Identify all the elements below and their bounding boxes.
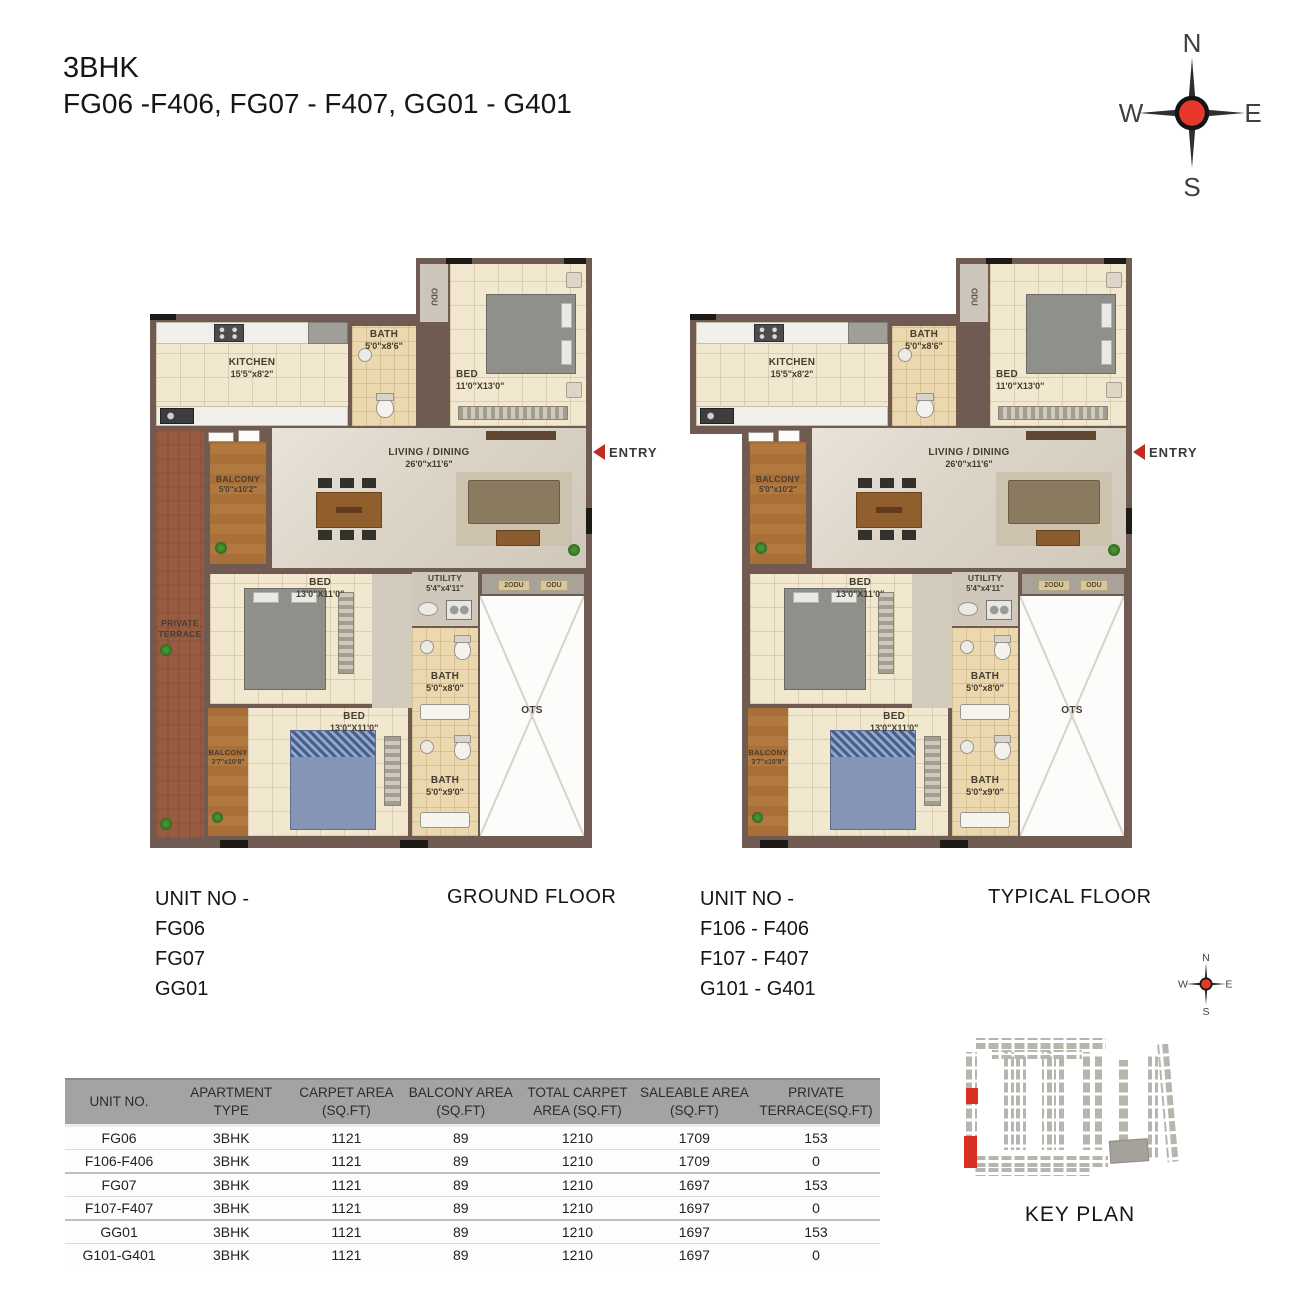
room-bath-mid: BATH 5'0"x8'0": [952, 628, 1018, 726]
entry-arrow-icon: [593, 444, 605, 460]
nightstand-icon: [566, 272, 582, 288]
bed-icon: [1026, 294, 1116, 374]
room-label: LIVING / DINING 26'0"x11'6": [812, 446, 1126, 471]
room-bed-bottom: BED 13'0"X11'0": [248, 708, 408, 836]
room-label: OTS: [1020, 704, 1124, 717]
room-bed-master: BED 11'0"X13'0": [450, 264, 586, 426]
cell: 89: [403, 1220, 518, 1244]
key-plan-title: KEY PLAN: [1000, 1203, 1160, 1227]
room-label: ODU: [970, 268, 979, 326]
sink-icon: [160, 408, 194, 424]
room-bed-mid: BED 13'0"X11'0": [210, 574, 372, 704]
basin-icon: [420, 640, 434, 654]
bathtub-icon: [420, 704, 470, 720]
entry-label: ENTRY: [609, 445, 658, 460]
cell: 1697: [637, 1244, 752, 1267]
toilet-icon: [916, 398, 934, 418]
cell: 153: [752, 1173, 880, 1197]
wall-segment: [760, 840, 788, 848]
odu-2-label: 2ODU: [1038, 580, 1069, 591]
building-column: [1042, 1052, 1052, 1150]
room-odu: ODU: [960, 264, 988, 322]
shelf-fixture: [778, 430, 800, 442]
compass-center: [1177, 98, 1207, 128]
utility-sink-icon: [418, 602, 438, 616]
unit-list-ground: UNIT NO - FG06 FG07 GG01: [155, 884, 249, 1004]
bed-icon: [290, 730, 376, 830]
dining-table-icon: [316, 492, 382, 528]
cell: 3BHK: [173, 1244, 289, 1267]
page-title: 3BHK: [63, 52, 139, 85]
nightstand-icon: [1106, 272, 1122, 288]
compass-icon: N S W E: [1117, 28, 1267, 198]
cell: 1697: [637, 1197, 752, 1221]
cell: 1121: [289, 1244, 403, 1267]
unit-line: F106 - F406: [700, 914, 816, 944]
compass-center: [1200, 978, 1211, 989]
compass-east-label: E: [1244, 98, 1261, 128]
cell: 89: [403, 1244, 518, 1267]
dining-chairs-icon: [318, 478, 332, 488]
cell: FG07: [65, 1173, 173, 1197]
room-label: BED 13'0"X11'0": [330, 710, 378, 735]
room-bed-mid: BED 13'0"X11'0": [750, 574, 912, 704]
room-label: BATH 5'0"x8'0": [412, 670, 478, 695]
wall-segment: [690, 314, 716, 320]
header-saleable-area: SALEABLE AREA(SQ.FT): [637, 1079, 752, 1126]
area-table: UNIT NO. APARTMENTTYPE CARPET AREA(SQ.FT…: [65, 1078, 880, 1266]
room-kitchen: KITCHEN 15'5"x8'2": [696, 322, 888, 426]
room-bath-top: BATH 5'0"x8'6": [892, 326, 956, 426]
unit-line: GG01: [155, 974, 249, 1004]
compass-north-label: N: [1183, 28, 1202, 58]
cell: 1210: [518, 1244, 637, 1267]
bathtub-icon: [960, 704, 1010, 720]
wardrobe-icon: [998, 406, 1108, 420]
header-carpet-area: CARPET AREA(SQ.FT): [289, 1079, 403, 1126]
room-label: ODU: [430, 268, 439, 326]
wardrobe-icon: [878, 592, 894, 674]
cell: 1697: [637, 1220, 752, 1244]
wardrobe-icon: [924, 736, 941, 806]
room-balcony-living: BALCONY 5'0"x10'2": [210, 442, 266, 564]
clubhouse-block: [1109, 1139, 1148, 1164]
cell: F107-F407: [65, 1197, 173, 1221]
cell: 0: [752, 1150, 880, 1174]
unit-line: FG07: [155, 944, 249, 974]
cell: GG01: [65, 1220, 173, 1244]
room-balcony-bottom: BALCONY 3'7"x10'8": [748, 708, 788, 836]
toilet-icon: [454, 640, 471, 660]
washer-icon: [986, 600, 1012, 620]
odu-2-label: 2ODU: [498, 580, 529, 591]
cell: 153: [752, 1126, 880, 1150]
odu-label: ODU: [1080, 580, 1108, 591]
plant-icon: [755, 542, 767, 554]
header-unit-no: UNIT NO.: [65, 1079, 173, 1126]
room-ots: OTS: [1020, 596, 1124, 836]
cell: 1121: [289, 1220, 403, 1244]
nightstand-icon: [1106, 382, 1122, 398]
entry-label: ENTRY: [1149, 445, 1198, 460]
tv-unit-icon: [1026, 431, 1096, 440]
cell: 3BHK: [173, 1197, 289, 1221]
shelf-fixture: [208, 432, 234, 442]
basin-icon: [960, 640, 974, 654]
odu-strip: 2ODU ODU: [482, 574, 584, 594]
room-bath-bottom: BATH 5'0"x9'0": [412, 726, 478, 836]
room-private-terrace: PRIVATE TERRACE: [156, 430, 204, 838]
cell: 89: [403, 1197, 518, 1221]
compass-west-label: W: [1178, 978, 1188, 990]
compass-east-label: E: [1225, 978, 1232, 990]
table-row: GG013BHK11218912101697153: [65, 1220, 880, 1244]
table-row: F106-F4063BHK112189121017090: [65, 1150, 880, 1174]
header-total-carpet-area: TOTAL CARPETAREA (SQ.FT): [518, 1079, 637, 1126]
cell: 1121: [289, 1197, 403, 1221]
room-label: BALCONY 3'7"x10'8": [208, 748, 248, 767]
cell: 0: [752, 1197, 880, 1221]
room-label: BALCONY 5'0"x10'2": [210, 474, 266, 495]
unit-line: F107 - F407: [700, 944, 816, 974]
compass-south-label: S: [1183, 172, 1200, 198]
cell: 1121: [289, 1150, 403, 1174]
floor-label-typical: TYPICAL FLOOR: [988, 886, 1152, 909]
plant-icon: [160, 644, 172, 656]
cell: 3BHK: [173, 1150, 289, 1174]
room-ots: OTS: [480, 596, 584, 836]
page-subtitle-units: FG06 -F406, FG07 - F407, GG01 - G401: [63, 88, 572, 120]
corridor: [912, 574, 952, 708]
wall-segment: [1126, 508, 1132, 534]
room-label: BALCONY 3'7"x10'8": [748, 748, 788, 767]
building-column: [1092, 1056, 1102, 1150]
room-bath-mid: BATH 5'0"x8'0": [412, 628, 478, 726]
unit-line: G101 - G401: [700, 974, 816, 1004]
table-row: G101-G4013BHK112189121016970: [65, 1244, 880, 1267]
cell: 89: [403, 1126, 518, 1150]
basin-icon: [960, 740, 974, 754]
room-label: BED 13'0"X11'0": [870, 710, 918, 735]
cell: 89: [403, 1173, 518, 1197]
room-label: BED 11'0"X13'0": [996, 368, 1044, 393]
tv-unit-icon: [486, 431, 556, 440]
cell: 3BHK: [173, 1220, 289, 1244]
cell: 1210: [518, 1126, 637, 1150]
room-label: BATH 5'0"x8'6": [892, 328, 956, 353]
room-label: KITCHEN 15'5"x8'2": [696, 356, 888, 381]
dining-table-icon: [856, 492, 922, 528]
room-label: BED 13'0"X11'0": [836, 576, 884, 601]
stove-icon: [754, 324, 784, 342]
plant-icon: [1108, 544, 1120, 556]
bed-icon: [244, 588, 326, 690]
cell: 1210: [518, 1220, 637, 1244]
sink-icon: [700, 408, 734, 424]
room-label: UTILITY 5'4"x4'11": [952, 573, 1018, 594]
sofa-icon: [1008, 480, 1100, 524]
room-bath-bottom: BATH 5'0"x9'0": [952, 726, 1018, 836]
unit-heading: UNIT NO -: [155, 884, 249, 914]
floor-plan-ground: KITCHEN 15'5"x8'2" BATH 5'0"x8'6" ODU BE…: [150, 258, 592, 848]
room-label: BATH 5'0"x8'0": [952, 670, 1018, 695]
header-balcony-area: BALCONY AREA(SQ.FT): [403, 1079, 518, 1126]
wall-segment: [150, 314, 176, 320]
cell: 1697: [637, 1173, 752, 1197]
cell: 1709: [637, 1126, 752, 1150]
room-balcony-bottom: BALCONY 3'7"x10'8": [208, 708, 248, 836]
room-balcony-living: BALCONY 5'0"x10'2": [750, 442, 806, 564]
wall-segment: [400, 840, 428, 848]
cell: 1121: [289, 1126, 403, 1150]
room-living-dining: LIVING / DINING 26'0"x11'6": [812, 428, 1126, 568]
building-column: [1054, 1056, 1064, 1150]
header-apartment-type: APARTMENTTYPE: [173, 1079, 289, 1126]
plant-icon: [212, 812, 223, 823]
bathtub-icon: [420, 812, 470, 828]
building-column: [1148, 1056, 1158, 1160]
building-column: [1004, 1052, 1014, 1150]
nightstand-icon: [566, 382, 582, 398]
wall-segment: [586, 508, 592, 534]
utility-sink-icon: [958, 602, 978, 616]
room-label: LIVING / DINING 26'0"x11'6": [272, 446, 586, 471]
unit-list-typical: UNIT NO - F106 - F406 F107 - F407 G101 -…: [700, 884, 816, 1004]
coffee-table-icon: [1036, 530, 1080, 546]
room-label: OTS: [480, 704, 584, 717]
bathtub-icon: [960, 812, 1010, 828]
room-label: UTILITY 5'4"x4'11": [412, 573, 478, 594]
cell: 1210: [518, 1197, 637, 1221]
sofa-icon: [468, 480, 560, 524]
room-bed-bottom: BED 13'0"X11'0": [788, 708, 948, 836]
header-private-terrace: PRIVATETERRACE(SQ.FT): [752, 1079, 880, 1126]
cell: 1121: [289, 1173, 403, 1197]
toilet-icon: [994, 640, 1011, 660]
table-row: FG063BHK11218912101709153: [65, 1126, 880, 1150]
building-column: [1016, 1056, 1026, 1150]
plant-icon: [752, 812, 763, 823]
compass-south-label: S: [1202, 1006, 1209, 1016]
cell: FG06: [65, 1126, 173, 1150]
cell: F106-F406: [65, 1150, 173, 1174]
unit-heading: UNIT NO -: [700, 884, 816, 914]
plant-icon: [215, 542, 227, 554]
highlighted-unit: [966, 1088, 978, 1104]
building-row: [972, 1156, 1108, 1167]
basin-icon: [420, 740, 434, 754]
wall-segment: [220, 840, 248, 848]
wall-segment: [940, 840, 968, 848]
bed-icon: [784, 588, 866, 690]
room-kitchen: KITCHEN 15'5"x8'2": [156, 322, 348, 426]
wardrobe-icon: [338, 592, 354, 674]
building-row: [976, 1038, 1106, 1049]
building-row: [974, 1168, 1092, 1176]
room-living-dining: LIVING / DINING 26'0"x11'6": [272, 428, 586, 568]
dining-chairs-icon: [858, 478, 872, 488]
fridge-icon: [308, 322, 348, 344]
odu-strip: 2ODU ODU: [1022, 574, 1124, 594]
room-label: BED 13'0"X11'0": [296, 576, 344, 601]
room-bath-top: BATH 5'0"x8'6": [352, 326, 416, 426]
building-column: [1080, 1052, 1090, 1150]
table-row: FG073BHK11218912101697153: [65, 1173, 880, 1197]
floor-plan-typical: KITCHEN 15'5"x8'2" BATH 5'0"x8'6" ODU BE…: [690, 258, 1132, 848]
room-bed-master: BED 11'0"X13'0": [990, 264, 1126, 426]
plant-icon: [568, 544, 580, 556]
room-label: PRIVATE TERRACE: [156, 618, 204, 640]
room-label: BED 11'0"X13'0": [456, 368, 504, 393]
compass-west-label: W: [1119, 98, 1144, 128]
plant-icon: [160, 818, 172, 830]
room-label: BATH 5'0"x8'6": [352, 328, 416, 353]
toilet-icon: [454, 740, 471, 760]
stove-icon: [214, 324, 244, 342]
room-utility: UTILITY 5'4"x4'11": [412, 572, 478, 626]
bed-icon: [486, 294, 576, 374]
brochure-page: 3BHK FG06 -F406, FG07 - F407, GG01 - G40…: [0, 0, 1296, 1296]
room-label: BALCONY 5'0"x10'2": [750, 474, 806, 495]
cell: 0: [752, 1244, 880, 1267]
odu-label: ODU: [540, 580, 568, 591]
cell: 3BHK: [173, 1173, 289, 1197]
compass-north-label: N: [1202, 952, 1210, 964]
room-label: KITCHEN 15'5"x8'2": [156, 356, 348, 381]
cell: 1210: [518, 1173, 637, 1197]
table-header-row: UNIT NO. APARTMENTTYPE CARPET AREA(SQ.FT…: [65, 1079, 880, 1126]
room-odu: ODU: [420, 264, 448, 322]
wardrobe-icon: [458, 406, 568, 420]
coffee-table-icon: [496, 530, 540, 546]
shelf-fixture: [748, 432, 774, 442]
cell: 1210: [518, 1150, 637, 1174]
toilet-icon: [994, 740, 1011, 760]
shelf-fixture: [238, 430, 260, 442]
building-column: [1157, 1044, 1178, 1163]
cell: G101-G401: [65, 1244, 173, 1267]
cell: 153: [752, 1220, 880, 1244]
wardrobe-icon: [384, 736, 401, 806]
entry-arrow-icon: [1133, 444, 1145, 460]
corridor: [372, 574, 412, 708]
cell: 1709: [637, 1150, 752, 1174]
room-utility: UTILITY 5'4"x4'11": [952, 572, 1018, 626]
bed-icon: [830, 730, 916, 830]
key-plan-map: [962, 1030, 1194, 1182]
highlighted-unit: [964, 1136, 977, 1168]
cell: 3BHK: [173, 1126, 289, 1150]
washer-icon: [446, 600, 472, 620]
fridge-icon: [848, 322, 888, 344]
floor-label-ground: GROUND FLOOR: [447, 886, 616, 909]
unit-line: FG06: [155, 914, 249, 944]
keyplan-compass-icon: N S W E: [1177, 952, 1235, 1016]
cell: 89: [403, 1150, 518, 1174]
table-row: F107-F4073BHK112189121016970: [65, 1197, 880, 1221]
toilet-icon: [376, 398, 394, 418]
room-label: BATH 5'0"x9'0": [412, 774, 478, 799]
room-label: BATH 5'0"x9'0": [952, 774, 1018, 799]
